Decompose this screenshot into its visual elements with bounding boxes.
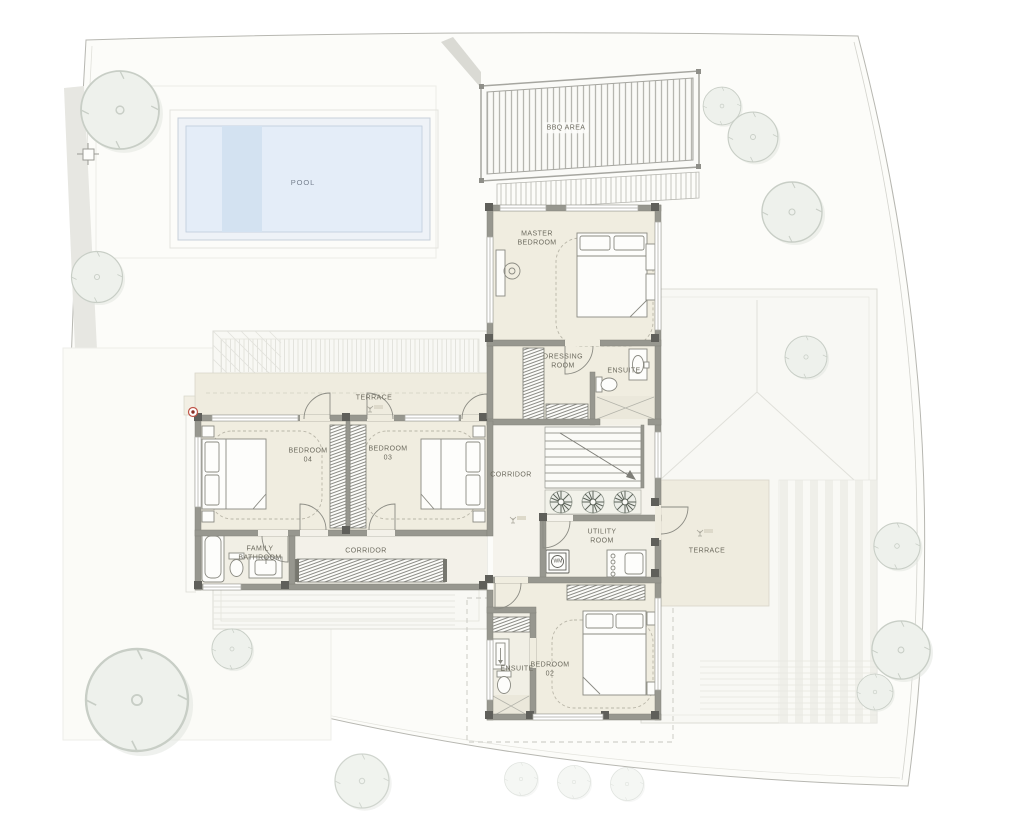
wardrobe-cap (295, 559, 299, 582)
window (487, 640, 493, 700)
window (203, 584, 241, 590)
bed-04 (202, 426, 266, 522)
window (655, 432, 661, 478)
terrace-east (661, 480, 769, 606)
window (487, 237, 493, 323)
washing-machine (546, 550, 569, 573)
staircase (545, 427, 641, 488)
window (655, 598, 661, 690)
terrace-west (184, 373, 487, 415)
toilet-ensuite-02 (497, 671, 511, 694)
tree-icon (558, 766, 593, 801)
toilet-master (596, 377, 617, 392)
bed-03 (421, 426, 485, 522)
toilet-family (229, 553, 244, 577)
wardrobe-cap (443, 559, 447, 582)
utility-sink-unit (607, 550, 646, 577)
survey-marker-icon (189, 408, 198, 417)
vanity-master (629, 349, 649, 380)
tree-icon (505, 763, 540, 798)
floor-plan-canvas: POOL BBQ AREA MASTER BEDROOM DRESSING RO… (0, 0, 1024, 834)
shower-master (596, 396, 655, 419)
stair-planter (545, 490, 641, 514)
tree-icon (611, 768, 646, 803)
shower-ensuite-02 (492, 695, 530, 717)
plant-icon (550, 491, 572, 513)
window (655, 222, 661, 330)
plant-icon (582, 491, 604, 513)
bathtub (202, 532, 224, 582)
window (533, 714, 603, 720)
window (195, 437, 201, 507)
window (405, 415, 459, 421)
pool (178, 118, 430, 240)
window (500, 205, 546, 211)
bed-02 (583, 611, 655, 695)
window (212, 415, 298, 421)
vanity-ensuite-02 (492, 639, 509, 669)
floor-plan-drawing (0, 0, 1024, 834)
plant-icon (614, 491, 636, 513)
tree-icon (335, 754, 392, 811)
window (566, 205, 638, 211)
